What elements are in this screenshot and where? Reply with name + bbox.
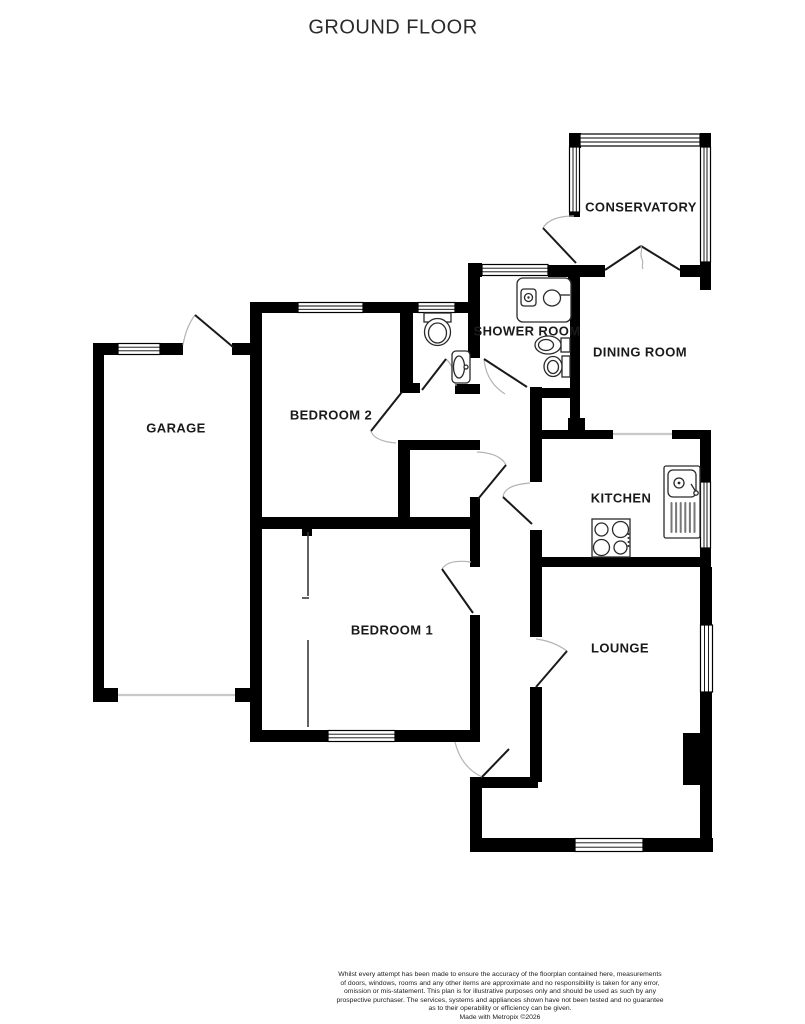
room-label-dining-room: DINING ROOM	[593, 345, 687, 360]
room-label-bedroom-1: BEDROOM 1	[351, 623, 433, 638]
bedroom-2-door	[371, 392, 402, 443]
room-label-shower-room: SHOWER ROOM	[474, 324, 581, 339]
shower-enclosure-icon	[517, 278, 571, 322]
room-label-garage: GARAGE	[146, 421, 205, 436]
kitchen-door	[503, 483, 532, 524]
garage-window	[118, 344, 160, 355]
floorplan-page: GROUND FLOOR	[0, 0, 805, 1024]
disclaimer: Whilst every attempt has been made to en…	[336, 971, 663, 1023]
floorplan-canvas	[0, 0, 805, 1024]
disclaimer-line: Whilst every attempt has been made to en…	[336, 971, 663, 980]
wc-door	[422, 359, 456, 390]
french-doors	[605, 246, 680, 270]
garage-side-door	[183, 315, 233, 347]
room-label-bedroom-2: BEDROOM 2	[290, 408, 372, 423]
conservatory-top-window	[580, 134, 700, 146]
lounge-door	[536, 639, 567, 687]
disclaimer-line: omission or mis-statement. This plan is …	[336, 988, 663, 997]
toilet-icon	[544, 356, 570, 377]
conservatory-left-window	[570, 147, 580, 212]
shower-room-door	[484, 359, 527, 394]
disclaimer-line: prospective purchaser. The services, sys…	[336, 997, 663, 1006]
metropix-credit: Made with Metropix ©2026	[336, 1014, 663, 1023]
wardrobe-icon	[302, 532, 309, 727]
lounge-bottom-window	[575, 839, 643, 852]
pedestal-basin-icon	[535, 336, 570, 354]
bedroom-2-window	[298, 303, 363, 313]
wc-toilet-icon	[424, 313, 451, 346]
room-label-lounge: LOUNGE	[591, 641, 649, 656]
front-door	[455, 742, 509, 777]
kitchen-window	[701, 482, 711, 548]
hob-icon	[592, 519, 630, 557]
wc-basin-icon	[452, 351, 470, 383]
disclaimer-line: as to their operability or efficiency ca…	[336, 1005, 663, 1014]
shower-room-window	[482, 265, 548, 276]
wc-window	[418, 303, 455, 313]
bedroom-1-window	[328, 731, 395, 742]
room-label-conservatory: CONSERVATORY	[585, 200, 697, 215]
conservatory-right-window	[701, 147, 711, 262]
cupboard-door	[477, 452, 506, 499]
bedroom-1-door	[442, 561, 473, 613]
room-label-kitchen: KITCHEN	[591, 491, 652, 506]
conservatory-external-door	[543, 216, 576, 263]
kitchen-sink-icon	[664, 466, 700, 538]
chimney-breast	[683, 733, 702, 785]
lounge-right-window	[701, 625, 713, 692]
disclaimer-line: of doors, windows, rooms and any other i…	[336, 980, 663, 989]
